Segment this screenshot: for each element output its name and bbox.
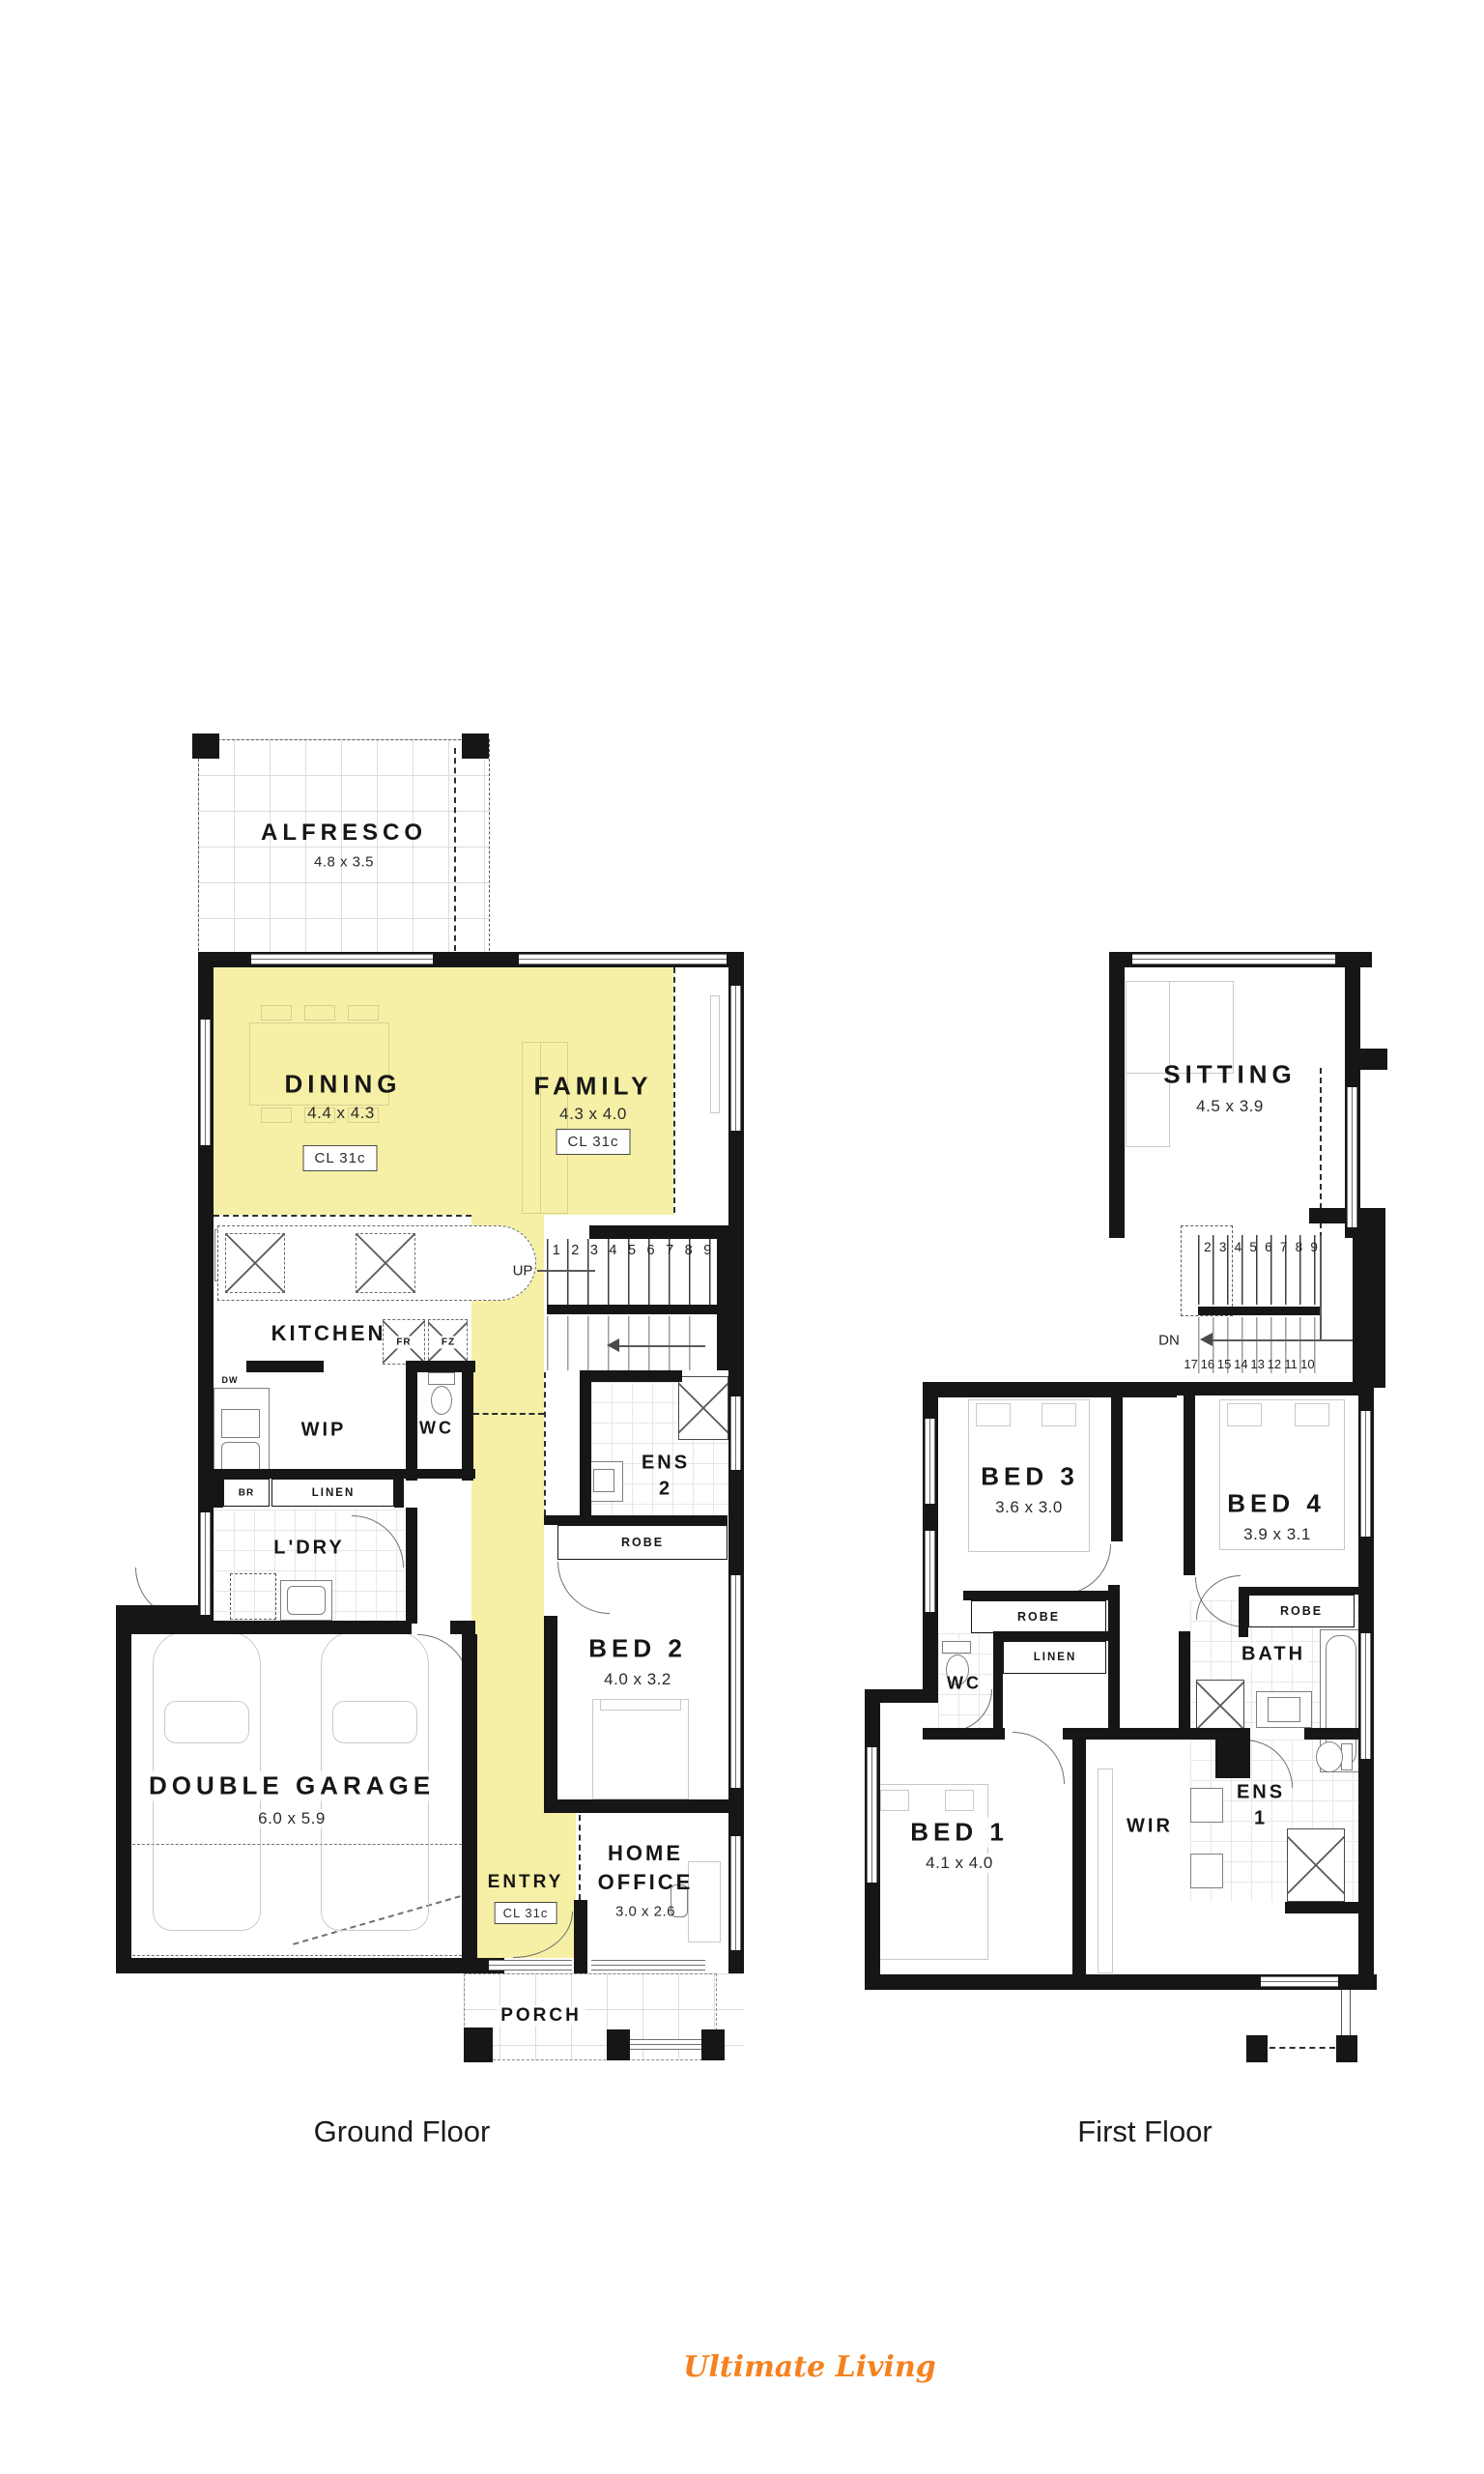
- room-label-bed4: BED 4: [1223, 1489, 1329, 1519]
- first-floor-caption: First Floor: [1077, 2114, 1213, 2149]
- stair-number: 2: [1200, 1240, 1215, 1254]
- car-windshield: [332, 1701, 417, 1743]
- room-label-bath: BATH: [1239, 1644, 1308, 1666]
- wall: [116, 1958, 504, 1973]
- bed3-pillow: [1042, 1403, 1076, 1426]
- window: [1261, 1976, 1338, 1987]
- window: [591, 1960, 705, 1971]
- stair-numbers: 123456789: [547, 1243, 717, 1258]
- stair-number: 10: [1299, 1357, 1316, 1371]
- ceiling-height-badge: CL 31c: [495, 1902, 557, 1924]
- ens2-basin: [593, 1469, 614, 1492]
- bed4-pillow: [1227, 1403, 1262, 1426]
- wall: [544, 1515, 728, 1525]
- wall: [406, 1361, 417, 1481]
- room-dims-bed2: 4.0 x 3.2: [604, 1670, 671, 1689]
- room-label-bed1: BED 1: [906, 1818, 1013, 1848]
- robe-label: ROBE: [1280, 1604, 1323, 1618]
- room-label-wc-ff: WC: [947, 1674, 982, 1694]
- balcony-dashed-line: [1270, 2047, 1335, 2049]
- stair-number: 2: [566, 1243, 585, 1258]
- ceiling-break-line: [544, 1372, 546, 1515]
- room-dims-bed1: 4.1 x 4.0: [926, 1854, 993, 1873]
- stair-number: 8: [679, 1243, 699, 1258]
- ceiling-height-badge: CL 31c: [303, 1145, 378, 1171]
- room-number-ens2: 2: [659, 1479, 672, 1501]
- window: [200, 1512, 211, 1615]
- linen-label: LINEN: [1034, 1652, 1077, 1663]
- wall: [394, 1477, 404, 1508]
- dining-chair: [261, 1005, 292, 1021]
- wall: [1239, 1587, 1248, 1637]
- stair-dn-label: DN: [1158, 1333, 1180, 1349]
- stair-number: 17: [1183, 1357, 1199, 1371]
- ens1-vanity: [1190, 1788, 1223, 1823]
- room-label-wip: WIP: [301, 1420, 347, 1442]
- ground-floor-caption: Ground Floor: [314, 2114, 491, 2149]
- room-dims-bed4: 3.9 x 3.1: [1243, 1525, 1311, 1544]
- wall: [1353, 1208, 1385, 1388]
- window: [1132, 954, 1335, 964]
- wall: [116, 1605, 131, 1970]
- alfresco-outline: [198, 739, 490, 956]
- dining-chair: [261, 1108, 292, 1123]
- wall: [406, 1469, 475, 1479]
- bed4-pillow: [1295, 1403, 1329, 1426]
- wall: [1177, 1382, 1372, 1395]
- window: [867, 1747, 877, 1883]
- balcony-tie: [1341, 1990, 1351, 2036]
- porch-railing: [630, 2039, 701, 2050]
- window: [1360, 1633, 1371, 1759]
- window: [925, 1419, 935, 1504]
- wall: [1118, 1728, 1219, 1740]
- wall: [589, 1225, 730, 1239]
- ceiling-break-line: [473, 1413, 544, 1415]
- bath-shower: [1196, 1680, 1244, 1732]
- stair-number: 3: [1215, 1240, 1231, 1254]
- stair-number: 14: [1233, 1357, 1249, 1371]
- stair-number: 13: [1249, 1357, 1266, 1371]
- stair-number: 8: [1292, 1240, 1307, 1254]
- freezer-label: FZ: [440, 1337, 457, 1349]
- dining-chair: [304, 1005, 335, 1021]
- robe-label: ROBE: [621, 1536, 664, 1549]
- wall: [589, 1370, 682, 1382]
- ens1-shower: [1287, 1828, 1345, 1902]
- balcony-post: [1246, 2035, 1268, 2062]
- stair-number: 9: [1306, 1240, 1322, 1254]
- window: [730, 1575, 741, 1788]
- stair-number: 9: [699, 1243, 718, 1258]
- wall: [1111, 1382, 1123, 1541]
- wall: [1239, 1587, 1364, 1595]
- window: [519, 954, 727, 964]
- room-label-office-line2: OFFICE: [598, 1870, 694, 1895]
- stair-number: 7: [660, 1243, 679, 1258]
- window: [251, 954, 433, 964]
- wall: [993, 1631, 1114, 1641]
- bed1-pillow: [880, 1790, 909, 1811]
- porch-post: [701, 2029, 725, 2060]
- bed2-bed: [592, 1699, 689, 1799]
- wall: [214, 1477, 223, 1508]
- room-dims-alfresco: 4.8 x 3.5: [314, 854, 374, 871]
- stair-number: 1: [547, 1243, 566, 1258]
- room-label-ens1: ENS: [1237, 1782, 1285, 1804]
- stair-mid-rail: [1198, 1307, 1320, 1315]
- stair-number: 11: [1283, 1357, 1299, 1371]
- wall: [1184, 1382, 1195, 1575]
- stair-number: 7: [1276, 1240, 1292, 1254]
- stair-up-label: UP: [513, 1263, 533, 1280]
- ground-floor-plan: ALFRESCO 4.8 x 3.5: [0, 0, 870, 2474]
- highlight-corridor-zone: [471, 1213, 544, 1806]
- room-label-kitchen: KITCHEN: [271, 1321, 386, 1346]
- wall: [580, 1370, 591, 1515]
- stair-number: 6: [642, 1243, 661, 1258]
- room-label-family: FAMILY: [534, 1072, 653, 1102]
- stair-number: 16: [1199, 1357, 1215, 1371]
- room-label-sitting: SITTING: [1163, 1060, 1297, 1090]
- room-label-wc: WC: [419, 1419, 454, 1439]
- wall: [923, 1728, 1005, 1740]
- wall: [1285, 1902, 1360, 1913]
- room-label-garage: DOUBLE GARAGE: [143, 1771, 441, 1801]
- wall: [963, 1591, 1113, 1600]
- stair-number: 5: [622, 1243, 642, 1258]
- stair-number: 5: [1245, 1240, 1261, 1254]
- wall: [1215, 1728, 1250, 1778]
- wall: [1179, 1631, 1190, 1728]
- toilet-tank: [428, 1372, 455, 1385]
- room-label-ldry: L'DRY: [273, 1538, 344, 1560]
- wall: [1063, 1728, 1118, 1740]
- family-sofa: [522, 1042, 541, 1214]
- first-floor-plan: SITTING 4.5 x 3.9 23456789 1716151413121…: [850, 0, 1484, 2474]
- balcony-post: [1336, 2035, 1357, 2062]
- window: [1347, 1087, 1357, 1227]
- wall: [1072, 1728, 1086, 1990]
- ceiling-height-badge: CL 31c: [556, 1129, 631, 1155]
- stair-number: 3: [585, 1243, 604, 1258]
- wall: [406, 1508, 417, 1624]
- robe-label: ROBE: [1017, 1610, 1060, 1624]
- window: [489, 1960, 572, 1971]
- tv-cabinet: [710, 995, 720, 1113]
- window: [1360, 1411, 1371, 1537]
- stair-direction-line: [1206, 1339, 1360, 1341]
- bed1-pillow: [945, 1790, 974, 1811]
- bed2-footboard: [600, 1699, 681, 1711]
- room-dims-office: 3.0 x 2.6: [615, 1904, 675, 1920]
- room-dims-garage: 6.0 x 5.9: [254, 1809, 329, 1828]
- wall: [116, 1605, 214, 1621]
- linen-label: LINEN: [312, 1487, 356, 1499]
- bath-basin: [1268, 1697, 1300, 1722]
- toilet-tank: [942, 1641, 971, 1654]
- wall: [993, 1631, 1003, 1733]
- wall: [246, 1361, 324, 1372]
- ens1-vanity: [1190, 1854, 1223, 1888]
- room-label-bed3: BED 3: [977, 1462, 1083, 1492]
- wall: [547, 1305, 717, 1314]
- stair-numbers-bottom: 1716151413121110: [1183, 1357, 1316, 1371]
- wall: [923, 1382, 1177, 1397]
- stair-number: 4: [1231, 1240, 1246, 1254]
- kitchen-cooktop: [356, 1233, 415, 1293]
- room-label-wir: WIR: [1127, 1816, 1173, 1838]
- stair-number: 6: [1261, 1240, 1276, 1254]
- stair-arrow: [607, 1338, 619, 1352]
- stair-treads-lower: [547, 1316, 707, 1370]
- wall: [462, 1361, 473, 1481]
- alfresco-dashed-line: [454, 748, 456, 951]
- wall: [544, 1799, 730, 1813]
- wall: [574, 1900, 587, 1973]
- floor-plan-page: { "colors": { "highlight": "#F6F0A6", "w…: [0, 0, 1484, 2474]
- stair-number: 4: [604, 1243, 623, 1258]
- wall: [544, 1616, 557, 1805]
- room-dims-family: 4.3 x 4.0: [559, 1105, 627, 1124]
- window: [925, 1531, 935, 1612]
- room-label-porch: PORCH: [497, 2005, 585, 2027]
- office-dashed-wall: [579, 1815, 581, 1900]
- ceiling-break-line: [214, 1215, 471, 1217]
- sink-bowl: [221, 1409, 260, 1438]
- room-dims-dining: 4.4 x 4.3: [307, 1104, 375, 1123]
- ldry-appliance-space: [230, 1573, 276, 1620]
- bed2-door-arc: [557, 1562, 610, 1614]
- wall: [214, 1469, 407, 1479]
- car-windshield: [164, 1701, 249, 1743]
- ldry-trough-bowl: [287, 1586, 326, 1615]
- window: [730, 1836, 741, 1950]
- dishwasher-label: DW: [222, 1375, 239, 1385]
- wall: [462, 1634, 477, 1973]
- stair-arrow: [1200, 1333, 1213, 1346]
- porch-post: [464, 2028, 493, 2062]
- bed1-door-arc: [1013, 1732, 1065, 1784]
- stair-numbers-top: 23456789: [1200, 1240, 1322, 1254]
- stair-up-line: [537, 1270, 595, 1272]
- stair-number: 15: [1216, 1357, 1233, 1371]
- builder-logo: Ultimate Living: [683, 2350, 936, 2384]
- window: [200, 1020, 211, 1145]
- wall: [450, 1621, 475, 1634]
- room-number-ens1: 1: [1254, 1808, 1268, 1830]
- room-label-office-line1: HOME: [608, 1841, 683, 1866]
- room-dims-bed3: 3.6 x 3.0: [995, 1498, 1063, 1517]
- room-dims-sitting: 4.5 x 3.9: [1196, 1097, 1264, 1116]
- wall: [1108, 1585, 1120, 1730]
- kitchen-sink-unit: [225, 1233, 285, 1293]
- stair-number: 12: [1266, 1357, 1282, 1371]
- wall: [1345, 1049, 1387, 1070]
- ens2-shower: [678, 1376, 728, 1440]
- fridge-label: FR: [394, 1337, 413, 1349]
- window: [730, 1396, 741, 1470]
- window: [730, 986, 741, 1131]
- wall: [1109, 952, 1125, 1238]
- room-label-entry: ENTRY: [488, 1872, 564, 1893]
- wall: [116, 1621, 412, 1634]
- bed3-door-arc: [1061, 1544, 1111, 1595]
- ceiling-break-line: [673, 967, 675, 1213]
- room-label-bed2: BED 2: [588, 1634, 687, 1664]
- stair-direction-line: [618, 1345, 705, 1347]
- room-label-ens2: ENS: [642, 1453, 690, 1475]
- room-label-alfresco: ALFRESCO: [261, 820, 427, 847]
- toilet-bowl: [431, 1386, 452, 1415]
- bed3-pillow: [976, 1403, 1011, 1426]
- alfresco-post: [462, 734, 489, 759]
- room-label-dining: DINING: [285, 1070, 402, 1100]
- broom-label: BR: [239, 1488, 254, 1499]
- alfresco-post: [192, 734, 219, 759]
- wir-shelving: [1098, 1769, 1113, 1973]
- toilet-bowl: [1316, 1741, 1343, 1772]
- porch-post: [607, 2029, 630, 2060]
- dining-chair: [348, 1005, 379, 1021]
- wall: [717, 1239, 730, 1370]
